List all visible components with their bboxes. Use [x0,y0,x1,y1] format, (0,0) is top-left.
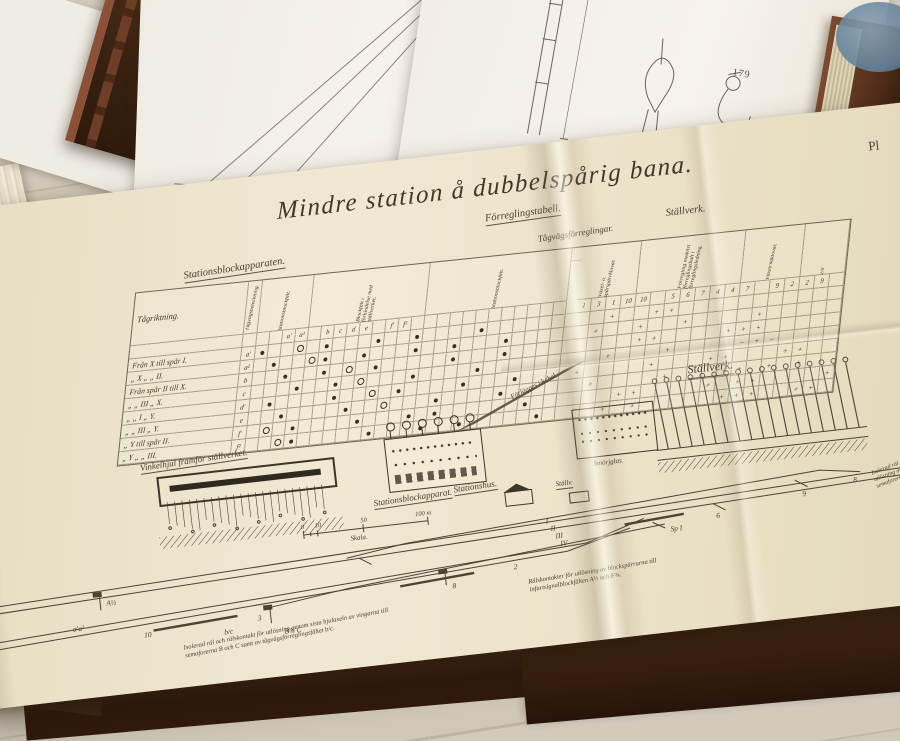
plunger-icon [433,417,443,427]
table-cell [817,378,833,393]
track-label: 100 m [415,509,432,518]
photo-scene: { "scene": { "wood_color": "#ccc4b3", "p… [0,0,900,675]
track-label: IV [559,538,569,548]
plunger-icon [417,418,427,428]
track-label: 8 [452,581,457,590]
table-cell [654,395,670,410]
track-label: 8 [853,475,858,484]
table-cell: + [728,388,744,403]
table-cell: + [743,386,759,401]
table-group-header: Stationsblockfält. [257,275,314,333]
stallverk-dots [576,408,648,424]
label-stallv: Ställv. [555,478,573,490]
blockapparat-bars [395,466,477,484]
table-cell [758,385,774,400]
table-cell: + [713,389,729,404]
plunger-icon [449,415,459,425]
table-group-header: Växelriktklovar. [741,224,806,283]
table-group-header: 2/9 [800,220,850,278]
track-label: 3 [256,613,262,623]
table-group-header: Växel- o. spårspärrklovar. [577,241,642,300]
table-cell [773,383,789,398]
table-cell [698,391,714,406]
stallverk-dots [578,422,651,446]
track-label: 2 [513,562,518,571]
track-label: I [544,516,549,525]
table-cell [683,392,699,407]
track-label: a′a² [72,623,85,633]
stationshus-icon [504,489,534,507]
table-cell: + [788,382,804,397]
plunger-icon [465,413,475,423]
plunger-icon [385,422,395,432]
track-label: 10 [144,630,153,640]
foldout-plate: a′a²A½10b/c3B¾ C82IIIIIIIVSp I6980105010… [0,99,900,710]
track-label: A½ [105,598,118,608]
track-label: 6 [716,511,721,520]
table-cell [669,394,685,409]
table-cell: + [803,380,819,395]
track-label: 9 [802,489,807,498]
track-label: 50 [360,517,368,525]
stallverk-hut-icon [569,490,590,503]
plate-corner-label: Pl [867,137,880,154]
plunger-icon [401,420,411,430]
track-label: Sp I [670,523,683,533]
vinkelhjul-bar [169,469,321,492]
stallverk-apparatus [571,401,658,460]
